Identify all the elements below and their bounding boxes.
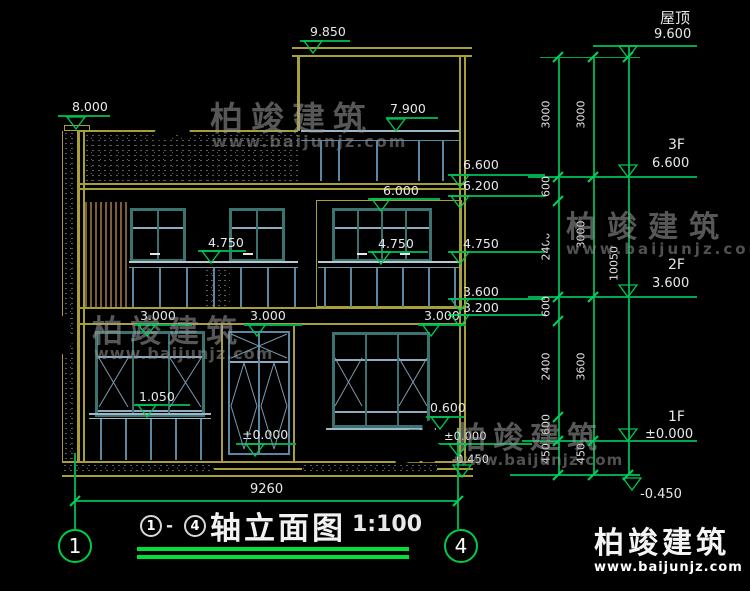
elev-3600-wall: 3.600 — [463, 284, 499, 299]
drawing-scale: 1:100 — [352, 512, 422, 537]
brand-logo: 柏竣建筑 www.baijunjz.com — [522, 508, 748, 588]
base-elev: -0.450 — [640, 487, 682, 502]
base-panel-bar — [125, 419, 127, 460]
marker-line-6000 — [368, 198, 440, 200]
f3-elev: 6.600 — [652, 156, 689, 171]
base-panel-bar — [100, 419, 102, 460]
brand-logo-text: 柏竣建筑 — [594, 518, 730, 562]
f1-name: 1F — [668, 409, 685, 425]
watermark-bottom: 柏竣建筑 www.baijunjz.com — [390, 407, 640, 487]
marker-line-0000-door — [236, 443, 296, 445]
brand-logo-url: www.baijunjz.com — [594, 560, 743, 575]
railing-bar — [132, 268, 134, 307]
elev-4750-mid: 4.750 — [378, 236, 414, 251]
elev-4750-left: 4.750 — [208, 235, 244, 250]
marker-line-4750-mid — [368, 251, 428, 253]
3f-band-mullion — [376, 141, 378, 181]
elev-1050: 1.050 — [139, 389, 175, 404]
axis-bubble-1: 1 — [58, 529, 92, 563]
watermark-top: 柏竣建筑 www.baijunjz.com — [148, 92, 408, 158]
elev-9850: 9.850 — [310, 24, 346, 39]
watermark-url: www.baijunjz.com — [454, 451, 623, 469]
axis-1-line — [74, 453, 76, 529]
entry-step-line — [214, 468, 302, 470]
elev-0000-door: ±0.000 — [242, 427, 288, 442]
dim-middle-3000a: 3000 — [575, 65, 588, 165]
mullion — [357, 211, 359, 259]
watermark-url: www.baijunjz.com — [94, 344, 273, 363]
roof-elev: 9.600 — [654, 27, 691, 42]
elev-3000-right: 3.000 — [424, 308, 460, 323]
mullion — [157, 211, 159, 259]
railing-bar — [240, 268, 242, 307]
handle-dash — [357, 253, 367, 255]
base-panel-bar — [150, 419, 152, 460]
railing-bar — [350, 268, 352, 307]
left-axis-column — [62, 131, 78, 461]
3f-band-mullion — [338, 141, 340, 181]
tower-roof-slab — [292, 47, 472, 57]
cad-elevation-drawing: { "watermark": {"brand": "柏竣建筑", "url": … — [0, 0, 750, 591]
handle-dash — [150, 253, 160, 255]
f2-elev: 3.600 — [652, 276, 689, 291]
elev-8000: 8.000 — [72, 99, 108, 114]
elev-6000: 6.000 — [383, 183, 419, 198]
title-dash: - — [166, 516, 173, 536]
watermark-right: 柏竣建筑 www.baijunjz.com — [508, 196, 748, 266]
sill-line — [98, 410, 202, 412]
marker-line-8000 — [58, 115, 110, 117]
base-panel-bar — [200, 419, 202, 460]
transom-line — [335, 359, 427, 361]
marker-line-4750-left — [198, 250, 246, 252]
width-dim-line — [75, 500, 458, 502]
handle-dash — [400, 253, 410, 255]
marker-line-9850 — [300, 40, 350, 42]
dim-top-connector — [540, 57, 640, 58]
drawing-title: 轴立面图 — [210, 503, 346, 548]
base-panel-bar — [175, 419, 177, 460]
f3-name: 3F — [668, 137, 685, 153]
balcony-slab-2f-left — [129, 261, 298, 268]
3f-band-mullion — [418, 141, 420, 181]
elev-6600-wall: 6.600 — [463, 157, 499, 172]
dim-middle-3600: 3600 — [575, 317, 588, 417]
railing-bar — [159, 268, 161, 307]
axis-bubble-4: 4 — [444, 529, 478, 563]
watermark-left: 柏竣建筑 www.baijunjz.com — [28, 302, 258, 372]
watermark-url: www.baijunjz.com — [212, 132, 407, 151]
railing-bar — [428, 268, 430, 307]
marker-line-3000-right — [418, 324, 466, 326]
railing-bar — [186, 268, 188, 307]
railing-bar — [213, 268, 215, 307]
watermark-url: www.baijunjz.com — [566, 240, 750, 258]
railing-bar — [294, 268, 296, 307]
3f-band-mullion — [320, 141, 322, 181]
elev-6200-wall: 6.200 — [463, 178, 499, 193]
window-2f-right — [332, 208, 432, 262]
marker-line-1050 — [134, 404, 190, 406]
mullion — [256, 211, 258, 259]
louvre-screen — [85, 202, 129, 307]
railing-bar — [402, 268, 404, 307]
elev-4750-wall: 4.750 — [463, 236, 499, 251]
title-underline-1 — [137, 547, 409, 551]
railing-bar — [324, 268, 326, 307]
title-underline-2 — [137, 555, 409, 559]
door-post-right — [293, 325, 295, 461]
brand-logo-icon — [390, 409, 446, 483]
elev-3200-wall: 3.200 — [463, 300, 499, 315]
mullion — [365, 335, 367, 425]
3f-band-mullion — [442, 141, 444, 181]
f3-level-line — [528, 176, 697, 178]
brand-logo-icon — [28, 304, 80, 374]
railing-bar — [376, 268, 378, 307]
brand-logo-icon — [148, 94, 200, 152]
handle-dash — [243, 253, 253, 255]
railing-bar — [267, 268, 269, 307]
balcony-slab-2f-right — [318, 261, 459, 268]
title-axis-to: 4 — [184, 515, 206, 537]
railing-bar — [454, 268, 456, 307]
title-axis-from: 1 — [140, 515, 162, 537]
brand-logo-icon — [508, 196, 556, 262]
width-dim: 9260 — [250, 482, 283, 497]
roof-name: 屋顶 — [660, 7, 690, 28]
roof-level-line — [593, 45, 697, 47]
f1-elev: ±0.000 — [645, 427, 693, 442]
